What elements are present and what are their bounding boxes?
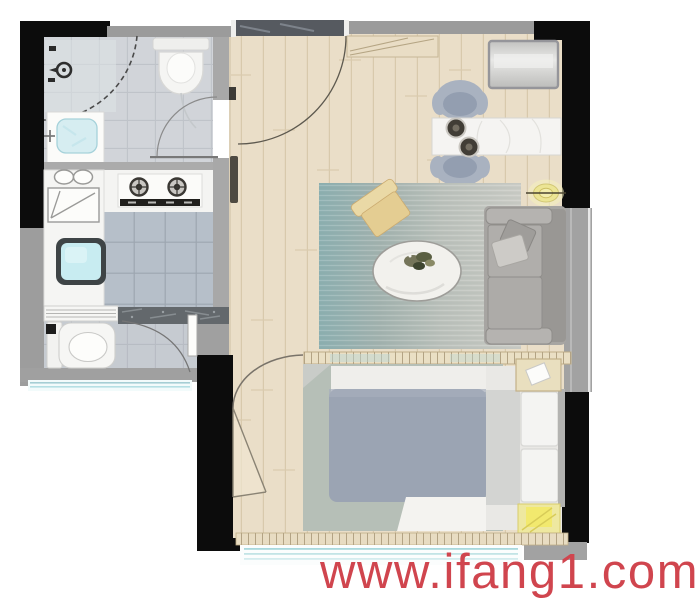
svg-text:www.ifang1.com: www.ifang1.com bbox=[319, 545, 699, 599]
